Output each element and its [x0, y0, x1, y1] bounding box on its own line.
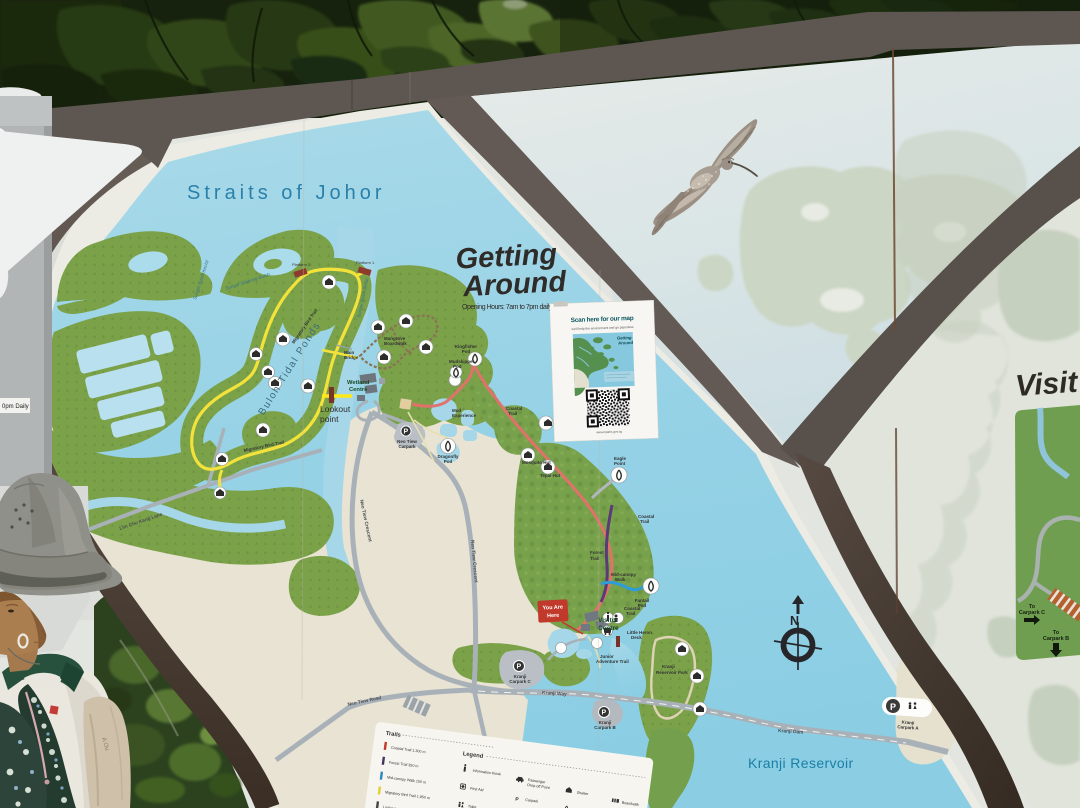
svg-text:Reservoir Park: Reservoir Park [656, 670, 688, 675]
svg-text:Experience: Experience [452, 413, 477, 418]
svg-text:You Are: You Are [542, 604, 563, 611]
svg-text:Trail: Trail [640, 519, 649, 524]
svg-text:Lookout: Lookout [320, 404, 351, 414]
svg-text:Pod: Pod [453, 364, 462, 369]
svg-text:P: P [602, 710, 607, 717]
svg-text:Point: Point [614, 461, 626, 466]
svg-text:Carpark B: Carpark B [1043, 636, 1069, 642]
svg-text:Visit: Visit [1014, 366, 1080, 403]
svg-text:Pod: Pod [462, 349, 471, 354]
svg-text:Around: Around [617, 340, 633, 346]
svg-text:P: P [890, 702, 896, 712]
svg-text:Carpark: Carpark [398, 444, 416, 449]
svg-text:Centre: Centre [598, 625, 619, 632]
svg-text:Deck: Deck [631, 635, 642, 640]
svg-text:Trail: Trail [508, 411, 517, 416]
svg-text:P: P [404, 429, 409, 436]
svg-text:Centre: Centre [349, 387, 368, 393]
svg-text:Trail: Trail [590, 556, 599, 561]
svg-text:Boardwalk: Boardwalk [384, 341, 407, 346]
svg-text:Trail: Trail [626, 611, 635, 616]
svg-text:Wetland: Wetland [347, 380, 370, 386]
svg-text:Platform 1: Platform 1 [356, 260, 375, 265]
svg-text:Carpark C: Carpark C [1019, 610, 1045, 616]
svg-text:N: N [790, 614, 799, 628]
svg-text:Mosquito Hut: Mosquito Hut [522, 460, 551, 465]
svg-text:P: P [517, 664, 522, 671]
svg-text:Carpark C: Carpark C [509, 679, 531, 684]
svg-text:Here: Here [547, 613, 560, 620]
svg-text:Carpark B: Carpark B [594, 725, 616, 730]
svg-text:0pm Daily: 0pm Daily [2, 404, 29, 410]
svg-text:point: point [320, 414, 339, 424]
svg-text:Kranji Reservoir: Kranji Reservoir [748, 755, 854, 771]
svg-text:Visitor: Visitor [598, 617, 619, 624]
svg-text:Adventure Trail: Adventure Trail [596, 659, 629, 664]
svg-text:Platform 2: Platform 2 [292, 262, 311, 267]
svg-text:Opening Hours: 7am to 7pm dail: Opening Hours: 7am to 7pm daily [462, 304, 553, 311]
svg-text:Toilet: Toilet [468, 804, 477, 808]
svg-text:Kranji: Kranji [662, 664, 675, 669]
svg-text:Straits of Johor: Straits of Johor [187, 182, 382, 204]
svg-text:Pod: Pod [444, 459, 453, 464]
svg-text:Pod: Pod [638, 603, 647, 608]
svg-text:Bridge: Bridge [344, 355, 359, 360]
svg-text:Forest: Forest [590, 550, 604, 555]
svg-text:Walk: Walk [615, 577, 626, 582]
svg-text:Tepai Hut: Tepai Hut [540, 473, 561, 478]
svg-text:Around: Around [461, 266, 568, 303]
